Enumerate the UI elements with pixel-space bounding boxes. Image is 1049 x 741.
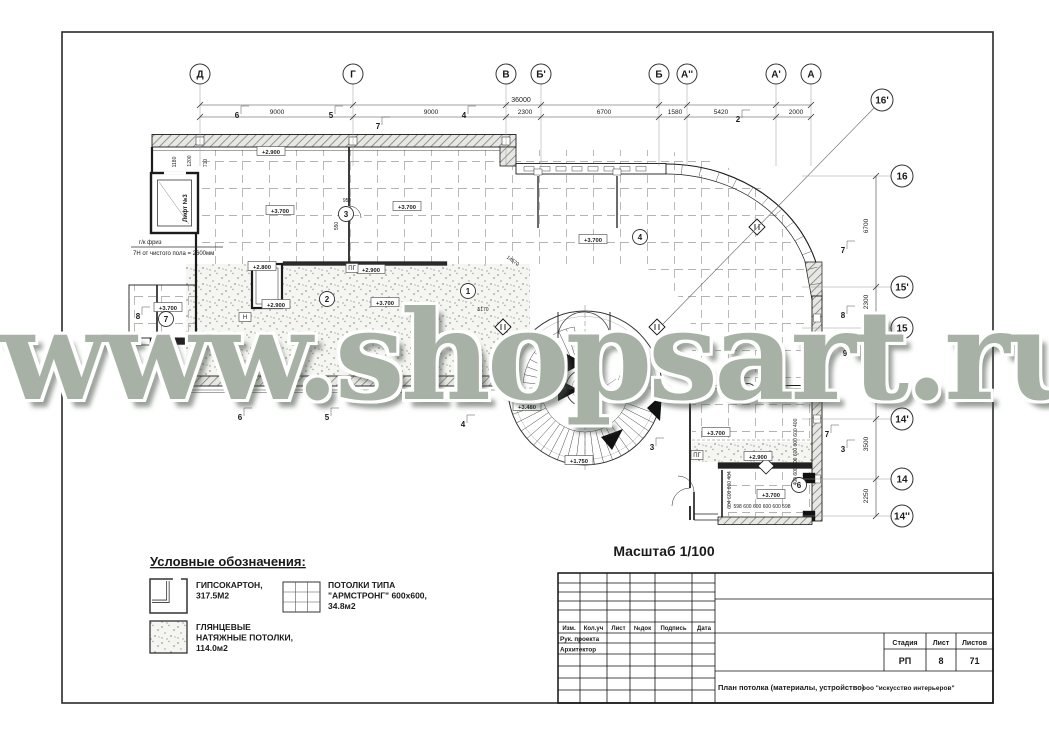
level-value: +3.700 [376,301,394,307]
titleblock-role: Архитектор [560,647,596,654]
plan-note: г/к фриз [139,240,162,246]
level-value: +3.700 [584,238,602,244]
level-value: +2.800 [253,265,271,271]
flag-number: 2 [736,115,741,124]
sheets-label: Листов [962,640,988,647]
legend-item: ГИПСОКАРТОН,317.5М2 [150,578,263,613]
axis-label: Б [655,70,662,81]
gloss-symbol [150,621,187,653]
axis-label: Д [196,70,203,81]
north-wall [152,135,516,148]
flag-number: 5 [329,111,334,120]
small-dim: 5170 [477,307,488,313]
flag-number: 9 [843,349,848,358]
level-value: +2.900 [267,303,285,309]
ceiling-fill-regions [186,150,812,516]
legend-text: ГЛЯНЦЕВЫЕ [196,622,251,632]
legend-item: ПОТОЛКИ ТИПА"АРМСТРОНГ" 600x600,34.8м2 [283,580,427,612]
small-dim: 1200 [187,155,193,166]
titleblock-col-header: Дата [697,626,712,632]
dim-total: 36000 [511,97,531,104]
level-value: +3.700 [707,431,725,437]
axis-label: В [502,70,509,81]
axis-label: А' [771,70,781,81]
legend-text: 317.5М2 [196,591,229,601]
flag-number: 4 [461,420,466,429]
room-number: 5 [746,387,751,396]
level-value: +3.700 [398,205,416,211]
small-dim: 550 [334,222,340,231]
east-wall [812,296,822,521]
small-dim: 400 600 600 600 600 600 400 [793,418,799,485]
titleblock-col-header: Подпись [660,626,686,632]
room-number: 7 [164,315,169,324]
legend-text: ГИПСОКАРТОН, [196,580,263,590]
scale-label: Масштаб 1/100 [613,543,715,559]
axis-label: 14' [895,415,909,426]
gloss-ceiling-region [186,264,530,376]
axis-label: Б' [536,70,546,81]
plan-note: Лифт [618,376,633,382]
small-dim: 710 [203,159,209,168]
title-block: Изм.Кол.учЛист№докПодписьДатаРук. проект… [558,573,993,703]
titleblock-col-header: №док [634,625,651,632]
legend-text: "АРМСТРОНГ" 600x600, [328,591,427,601]
legend-text: 34.8м2 [328,601,356,611]
south-wall [183,376,520,386]
dim-segment: 9000 [270,109,285,116]
dim-segment: 2050 [863,339,870,354]
level-value: +1.750 [570,459,588,465]
flag-number: 7 [825,430,830,439]
flag-number: 3 [841,445,846,454]
legend-title: Условные обозначения: [150,554,306,569]
level-value: +3.700 [762,493,780,499]
room-number: 2 [325,295,330,304]
stage-label: Стадия [892,640,917,647]
dim-segment: 1580 [668,109,683,116]
flag-number: 7 [841,246,846,255]
level-value: +2.900 [362,268,380,274]
small-dim: 958 [343,198,352,204]
titleblock-role: Рук. проекта [560,636,600,643]
stage-value: РП [899,656,911,666]
plan-note: Лифт №3 [182,194,189,222]
axis-label: Г [350,70,356,81]
axis-label: 14 [896,475,908,486]
flag-number: 8 [136,312,141,321]
axis-label: 15 [896,324,908,335]
drywall-symbol [150,579,187,613]
legend-item: ГЛЯНЦЕВЫЕНАТЯЖНЫЕ ПОТОЛКИ,114.0м2 [150,621,293,653]
flag-number: 8 [841,311,846,320]
legend: Условные обозначения: ГИПСОКАРТОН,317.5М… [150,554,427,653]
small-dim: 604 600 600 404 [727,471,733,509]
dim-segment: 2300 [863,294,870,309]
dim-segment: 9000 [424,109,439,116]
company-name: ооо "искусство интерьеров" [862,685,955,692]
axis-label: 16' [875,96,889,107]
ceiling-plan-svg: ДГВБ'БА''А'А16'1615'1514'1414'' 36000900… [0,0,1049,741]
level-value: +2.900 [749,455,767,461]
flag-number: 7 [376,122,381,131]
legend-text: 114.0м2 [196,643,228,653]
sheets-value: 71 [969,656,979,666]
titleblock-col-header: Кол.уч [584,626,604,632]
dim-segment: 3500 [863,436,870,451]
drawing-sheet: ДГВБ'БА''А'А16'1615'1514'1414'' 36000900… [0,0,1049,741]
plan-note: Н [243,315,247,321]
flag-number: 3 [650,443,655,452]
dim-segment: 6700 [597,109,612,116]
flag-number: 5 [325,413,330,422]
dim-segment: 6700 [863,218,870,233]
titleblock-col-header: Лист [611,626,625,632]
dim-segment: 2250 [863,488,870,503]
dim-segment: 2300 [518,109,533,116]
flag-number: 6 [235,111,240,120]
sheet-label: Лист [933,640,950,647]
small-dim: 1180 [172,156,178,167]
dim-segment: 5420 [714,109,729,116]
sheet-value: 8 [938,656,943,666]
plan-note: 7Н от чистого пола = 2600мм [133,251,214,257]
axis-label: А [807,70,814,81]
armstrong-symbol [283,582,320,612]
axis-label: 16 [896,172,908,183]
flag-number: 4 [462,111,467,120]
axis-label: 14'' [894,512,910,523]
flag-number: 6 [238,413,243,422]
level-value: +3.700 [159,306,177,312]
wall-jog [500,147,516,166]
room-number: 4 [638,233,643,242]
level-value: +2.900 [262,150,280,156]
room-number: 1 [466,287,471,296]
small-dim: 598 600 600 600 600 598 [734,504,791,510]
plan-note: ПГ [348,266,356,272]
plan-note: ПГ [693,453,701,459]
titleblock-col-header: Изм. [562,626,576,632]
room-number: 3 [344,210,349,219]
legend-text: ПОТОЛКИ ТИПА [328,580,395,590]
axis-label: А'' [681,70,693,81]
room6-south-wall [718,517,812,525]
document-title: План потолка (материалы, устройство) [718,683,865,692]
legend-text: НАТЯЖНЫЕ ПОТОЛКИ, [196,633,293,643]
dim-segment: 2000 [789,109,804,116]
level-value: +3.700 [271,209,289,215]
level-value: +3.480 [518,405,536,411]
axis-label: 15' [895,283,909,294]
